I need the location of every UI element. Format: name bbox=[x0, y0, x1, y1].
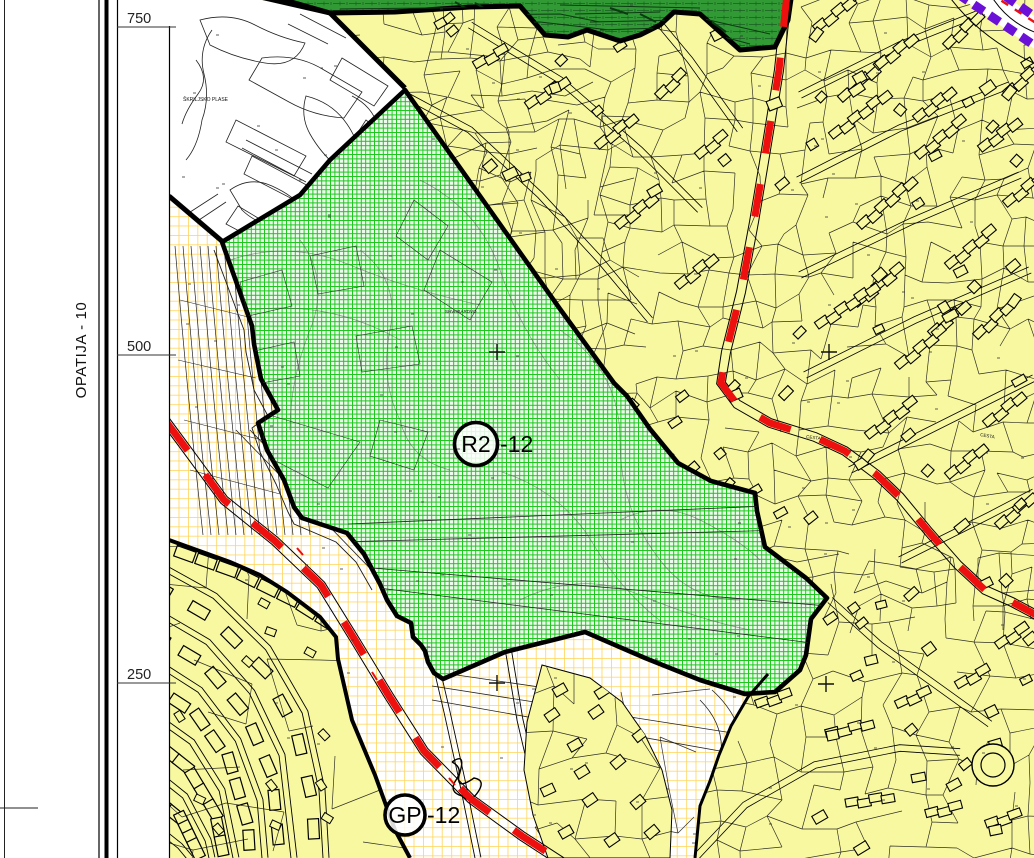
svg-text:-12: -12 bbox=[500, 431, 533, 457]
svg-text:ŠKRILJSKO PLASE: ŠKRILJSKO PLASE bbox=[183, 96, 229, 103]
svg-text:750: 750 bbox=[127, 11, 151, 27]
svg-text:OPATIJA - 10: OPATIJA - 10 bbox=[73, 302, 90, 399]
svg-text:GP: GP bbox=[388, 802, 421, 828]
svg-text:500: 500 bbox=[127, 339, 151, 355]
svg-text:R2: R2 bbox=[461, 431, 490, 457]
svg-text:250: 250 bbox=[127, 667, 151, 683]
svg-text:SHVHBARDVO: SHVHBARDVO bbox=[445, 309, 477, 314]
svg-text:-12: -12 bbox=[427, 802, 460, 828]
